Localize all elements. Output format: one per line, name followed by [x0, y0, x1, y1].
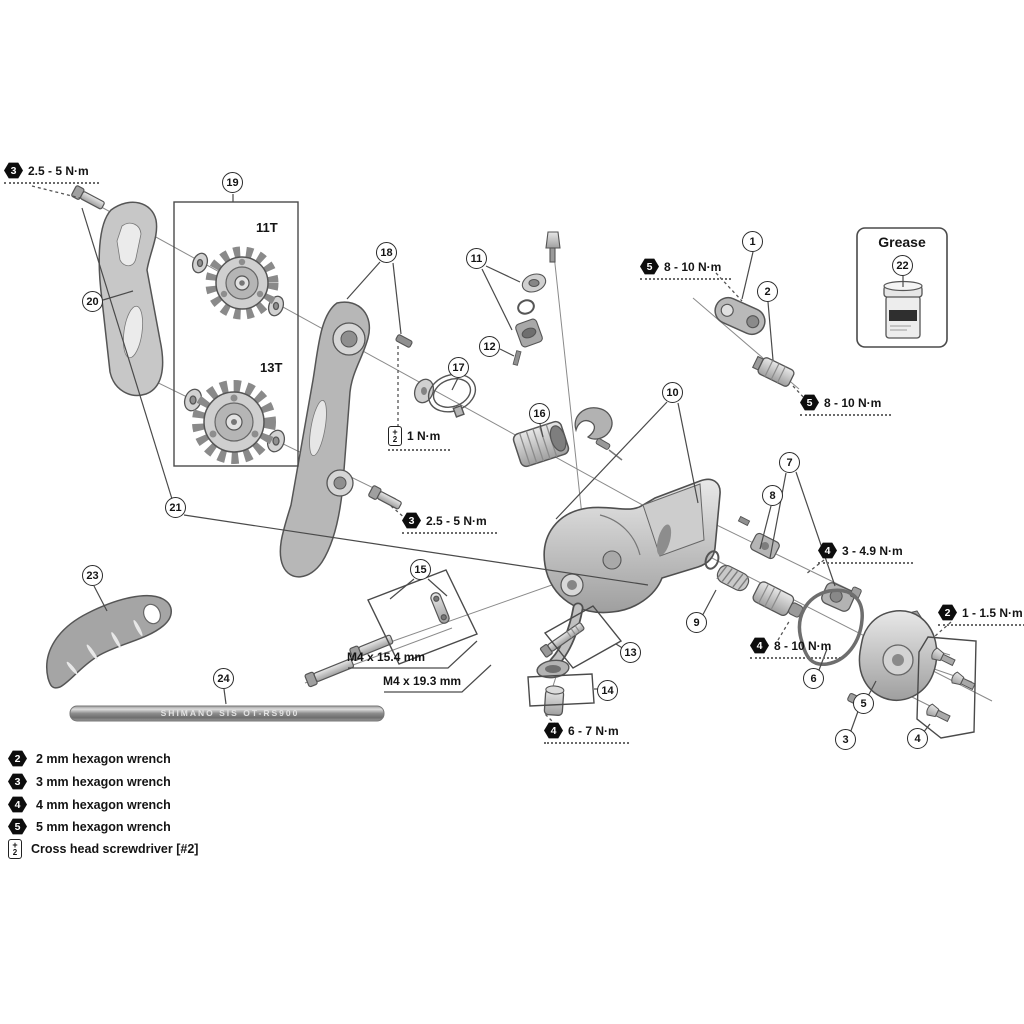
torque-label-stopper-screw: + 2 1 N·m	[388, 426, 450, 451]
tnut-bolt	[536, 658, 570, 715]
torque-label-cage-bolt-lower: 3 2.5 - 5 N·m	[402, 512, 497, 534]
diagram-artwork	[0, 0, 1024, 1024]
legend-label: Cross head screwdriver [#2]	[31, 842, 198, 856]
part-callout-17: 17	[448, 357, 469, 378]
part-callout-20: 20	[82, 291, 103, 312]
torque-value: 1 - 1.5 N·m	[962, 606, 1023, 620]
part-callout-6: 6	[803, 668, 824, 689]
torque-value: 8 - 10 N·m	[824, 396, 881, 410]
cover-unit	[859, 611, 936, 700]
hex-wrench-badge: 4	[544, 722, 563, 739]
part-callout-2: 2	[757, 281, 778, 302]
cable-housing-marking: SHIMANO SIS OT-RS900	[90, 708, 370, 718]
pulley-size-top: 11T	[256, 220, 278, 235]
part-callout-22: 22	[892, 255, 913, 276]
bolt-length-label-b: M4 x 19.3 mm	[383, 674, 461, 688]
skid-plate	[47, 596, 171, 688]
hex-wrench-badge: 2	[8, 750, 27, 767]
part-callout-11: 11	[466, 248, 487, 269]
part-callout-13: 13	[620, 642, 641, 663]
hex-wrench-badge: 3	[4, 162, 23, 179]
part-callout-3: 3	[835, 729, 856, 750]
torque-label-mount-bolt: 4 6 - 7 N·m	[544, 722, 629, 744]
torque-value: 3 - 4.9 N·m	[842, 544, 903, 558]
plate-bolt-top	[71, 185, 106, 211]
torque-value: 2.5 - 5 N·m	[28, 164, 89, 178]
torque-label-cage-bolt-top: 3 2.5 - 5 N·m	[4, 162, 99, 184]
torque-label-bracket-axle: 5 8 - 10 N·m	[800, 394, 891, 416]
cover-screws	[925, 647, 976, 724]
legend-label: 3 mm hexagon wrench	[36, 775, 171, 789]
part-callout-12: 12	[479, 336, 500, 357]
cable-bolt-stack	[515, 232, 560, 348]
legend-label: 2 mm hexagon wrench	[36, 752, 171, 766]
torque-label-tension-bolt: 4 8 - 10 N·m	[750, 637, 841, 659]
hex-wrench-badge: 3	[402, 512, 421, 529]
part-callout-1: 1	[742, 231, 763, 252]
guide-pulley-11t	[211, 252, 273, 314]
tension-spring-group	[703, 549, 806, 622]
hex-wrench-badge: 4	[8, 796, 27, 813]
phillips-size: 2	[393, 436, 397, 444]
grease-box-title: Grease	[857, 234, 947, 250]
cable-hook	[575, 408, 622, 460]
part-callout-18: 18	[376, 242, 397, 263]
stopper-pin	[395, 334, 436, 405]
torque-label-cover-screws: 2 1 - 1.5 N·m	[938, 604, 1024, 626]
torque-value: 1 N·m	[407, 429, 440, 443]
hex-wrench-badge: 5	[640, 258, 659, 275]
part-callout-5: 5	[853, 693, 874, 714]
exploded-parts-diagram: 1 2 3 4 5 6 7 8 9 10 11 12 13 14 15 16 1…	[0, 0, 1024, 1024]
cross-head-screwdriver-icon: + 2	[388, 426, 402, 446]
part-callout-21: 21	[165, 497, 186, 518]
part-callout-7: 7	[779, 452, 800, 473]
pulley-bolt-lower	[368, 485, 403, 511]
part-callout-4: 4	[907, 728, 928, 749]
legend-row-screwdriver: + 2 Cross head screwdriver [#2]	[8, 839, 198, 859]
hex-wrench-badge: 3	[8, 773, 27, 790]
torque-label-bracket-upper: 5 8 - 10 N·m	[640, 258, 731, 280]
torque-label-b-screw: 4 3 - 4.9 N·m	[818, 542, 913, 564]
part-callout-16: 16	[529, 403, 550, 424]
hex-wrench-badge: 4	[818, 542, 837, 559]
tension-pulley-13t	[198, 386, 270, 458]
legend-row-3mm: 3 3 mm hexagon wrench	[8, 773, 171, 790]
torque-value: 8 - 10 N·m	[664, 260, 721, 274]
callout-boxes	[174, 202, 976, 738]
cross-head-screwdriver-icon: + 2	[8, 839, 22, 859]
legend-row-5mm: 5 5 mm hexagon wrench	[8, 818, 171, 835]
hex-wrench-badge: 5	[8, 818, 27, 835]
hex-wrench-badge: 2	[938, 604, 957, 621]
hex-wrench-badge: 5	[800, 394, 819, 411]
bracket-link	[711, 294, 769, 339]
bolt-length-label-a: M4 x 15.4 mm	[347, 650, 425, 664]
mount-bolts	[305, 591, 451, 687]
legend-label: 5 mm hexagon wrench	[36, 820, 171, 834]
legend-row-2mm: 2 2 mm hexagon wrench	[8, 750, 171, 767]
small-pin	[513, 351, 521, 366]
phillips-size: 2	[13, 849, 17, 857]
torque-value: 8 - 10 N·m	[774, 639, 831, 653]
torque-value: 6 - 7 N·m	[568, 724, 619, 738]
grease-jar	[884, 282, 922, 339]
hex-wrench-badge: 4	[750, 637, 769, 654]
part-callout-10: 10	[662, 382, 683, 403]
part-callout-8: 8	[762, 485, 783, 506]
part-callout-19: 19	[222, 172, 243, 193]
part-callout-9: 9	[686, 612, 707, 633]
torque-value: 2.5 - 5 N·m	[426, 514, 487, 528]
legend-label: 4 mm hexagon wrench	[36, 798, 171, 812]
part-callout-23: 23	[82, 565, 103, 586]
part-callout-14: 14	[597, 680, 618, 701]
part-callout-15: 15	[410, 559, 431, 580]
part-callout-24: 24	[213, 668, 234, 689]
pulley-size-bottom: 13T	[260, 360, 282, 375]
legend-row-4mm: 4 4 mm hexagon wrench	[8, 796, 171, 813]
